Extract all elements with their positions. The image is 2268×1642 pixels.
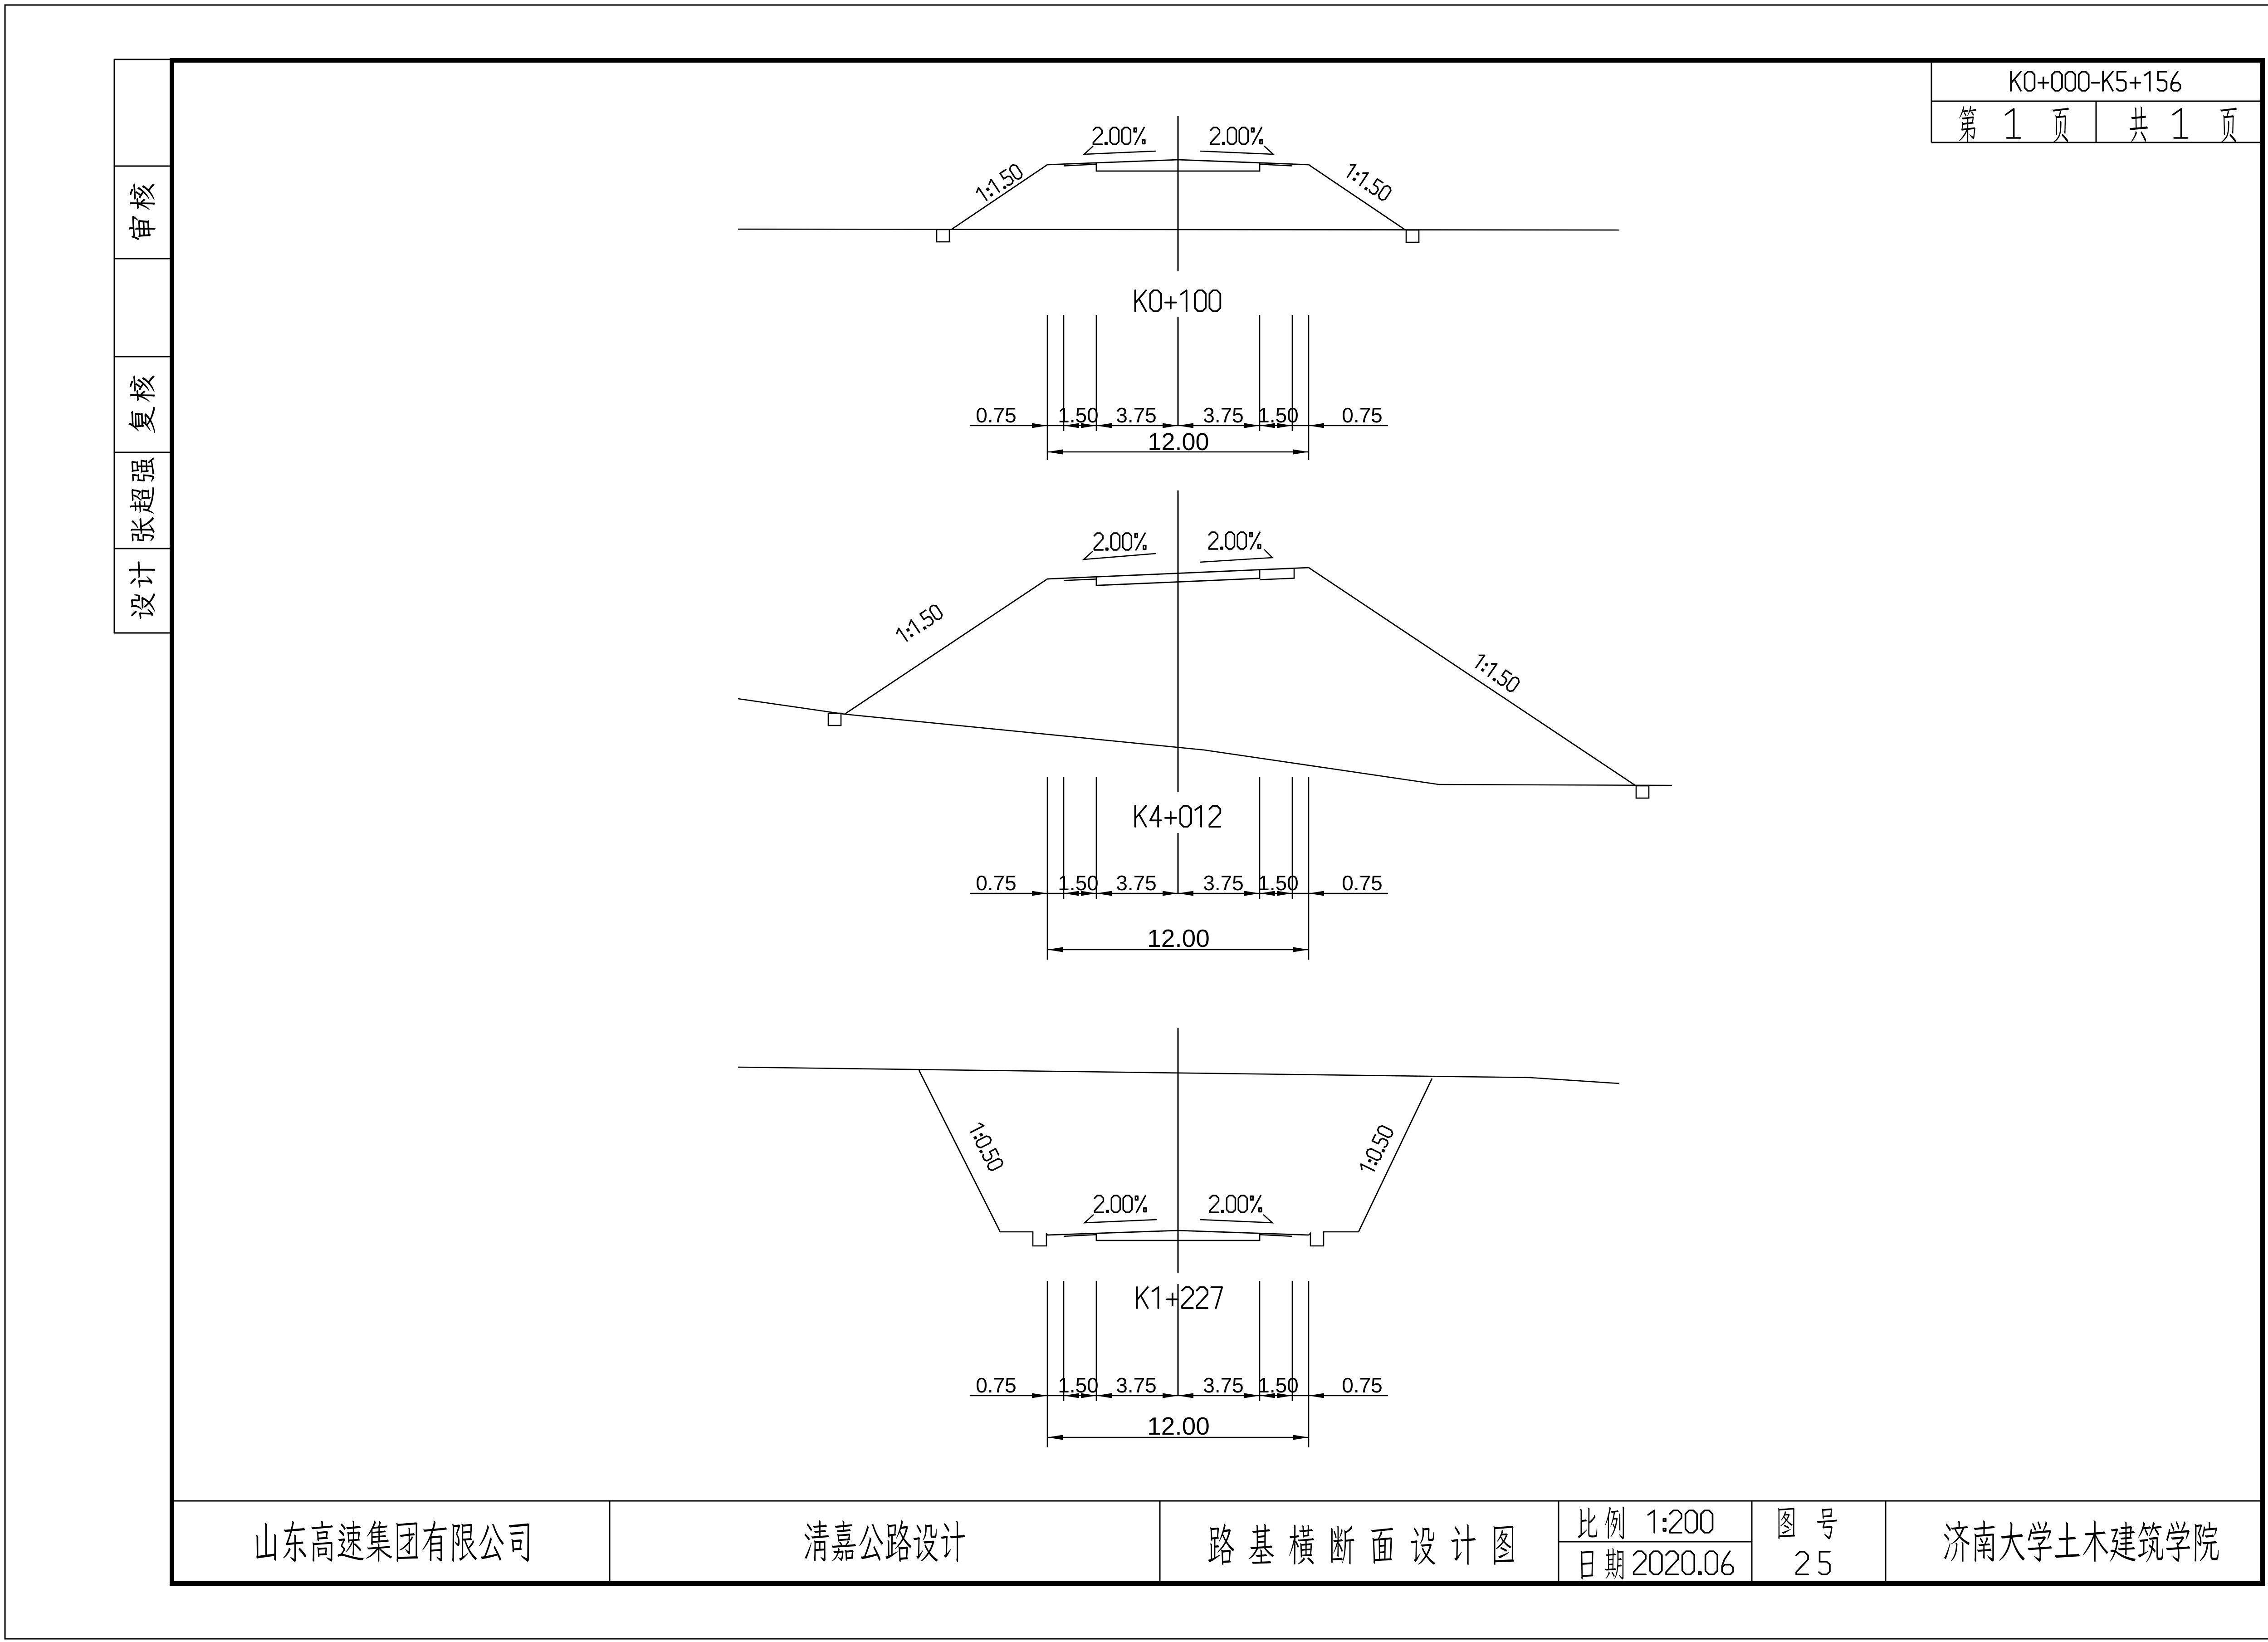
- svg-text:12.00: 12.00: [1147, 1412, 1210, 1440]
- svg-text:3.75: 3.75: [1116, 871, 1157, 895]
- svg-text:3.75: 3.75: [1203, 871, 1244, 895]
- svg-text:3.75: 3.75: [1116, 403, 1157, 427]
- svg-text:12.00: 12.00: [1147, 924, 1210, 952]
- svg-text:0.75: 0.75: [976, 1373, 1017, 1397]
- svg-text:1.50: 1.50: [1058, 871, 1099, 895]
- svg-text:3.75: 3.75: [1116, 1373, 1157, 1397]
- svg-text:0.75: 0.75: [976, 871, 1017, 895]
- svg-text:1.50: 1.50: [1258, 403, 1299, 427]
- svg-text:0.75: 0.75: [1342, 1373, 1383, 1397]
- svg-text:1.50: 1.50: [1258, 871, 1299, 895]
- svg-text:1.50: 1.50: [1058, 1373, 1099, 1397]
- svg-text:0.75: 0.75: [1342, 871, 1383, 895]
- svg-text:3.75: 3.75: [1203, 1373, 1244, 1397]
- svg-text:3.75: 3.75: [1203, 403, 1244, 427]
- svg-text:0.75: 0.75: [1342, 403, 1383, 427]
- svg-text:12.00: 12.00: [1148, 428, 1209, 456]
- svg-text:1.50: 1.50: [1258, 1373, 1299, 1397]
- svg-text:1.50: 1.50: [1058, 403, 1099, 427]
- svg-text:0.75: 0.75: [976, 403, 1017, 427]
